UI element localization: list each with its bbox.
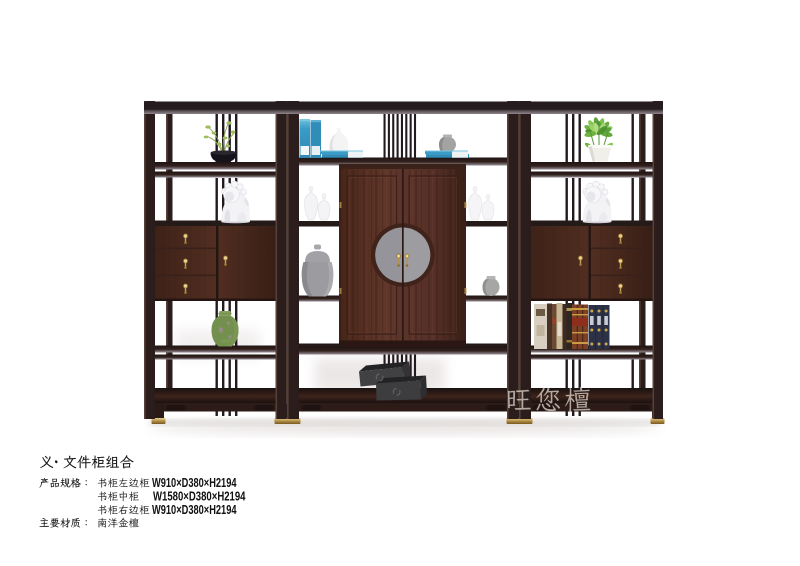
svg-text:W910×D380×H2194: W910×D380×H2194 (152, 502, 237, 517)
